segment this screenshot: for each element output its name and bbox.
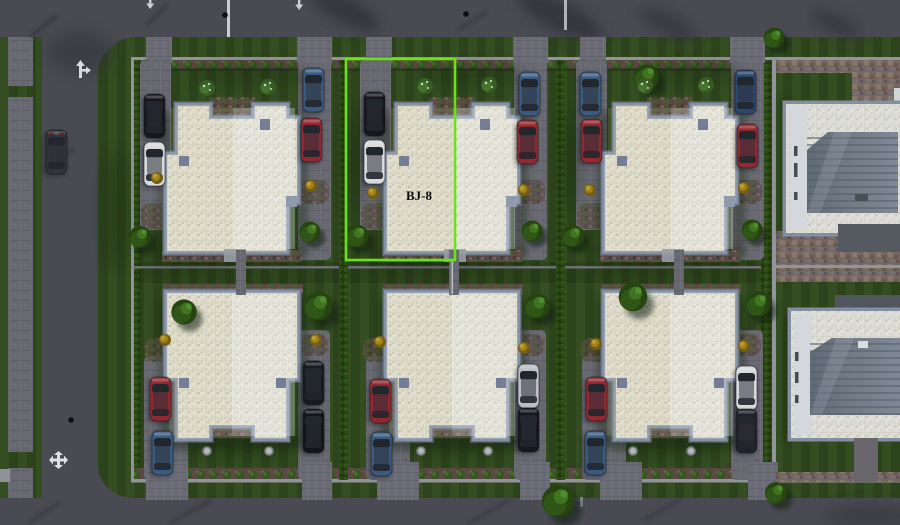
svg-text:BJ-8: BJ-8 [406,188,433,203]
